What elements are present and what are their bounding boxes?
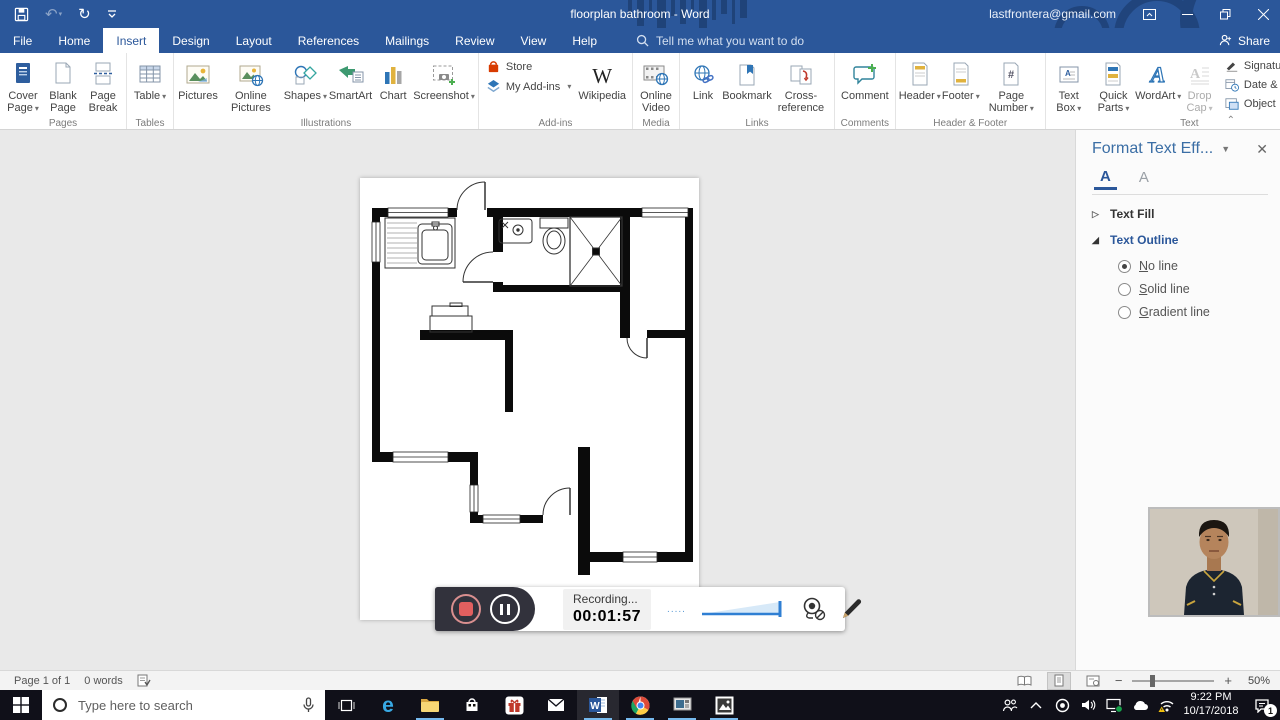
taskbar-file-explorer-button[interactable] xyxy=(409,690,451,720)
word-icon: W xyxy=(589,696,608,714)
webcam-off-icon xyxy=(800,596,827,622)
chart-icon xyxy=(381,57,405,87)
date-time-button[interactable]: Date & Time xyxy=(1225,78,1280,92)
footer-icon xyxy=(950,57,972,87)
close-icon xyxy=(1258,9,1269,20)
system-tray: 9:22 PM 10/17/2018 1 xyxy=(998,690,1280,720)
button-label: Quick Parts▾ xyxy=(1092,90,1135,115)
table-icon xyxy=(137,57,163,87)
button-label: Online Video xyxy=(639,90,673,115)
pause-icon xyxy=(500,604,503,615)
stop-icon xyxy=(459,602,473,616)
date-time-label: Date & Time xyxy=(1244,79,1280,91)
text-box-icon: A xyxy=(1057,57,1081,87)
signature-line-button[interactable]: Signature Line ▾ xyxy=(1225,59,1280,73)
recording-status: Recording... 00:01:57 xyxy=(563,589,651,630)
svg-text:W: W xyxy=(590,701,600,712)
bookmark-button[interactable]: Bookmark xyxy=(723,54,771,116)
zoom-slider-thumb[interactable] xyxy=(1150,675,1155,687)
stop-recording-button[interactable] xyxy=(451,594,481,624)
group-label-links: Links xyxy=(680,118,834,129)
svg-text:A: A xyxy=(1065,69,1071,78)
file-explorer-icon xyxy=(420,697,440,713)
chevron-down-icon: ▾ xyxy=(471,92,475,101)
tab-file[interactable]: File xyxy=(0,28,45,53)
page-indicator[interactable]: Page 1 of 1 xyxy=(14,675,70,687)
comment-button[interactable]: Comment xyxy=(838,54,892,116)
collapsed-triangle-icon: ▷ xyxy=(1092,209,1102,220)
cloud-icon xyxy=(1132,699,1149,711)
redo-button[interactable]: ↻ xyxy=(78,5,91,23)
drag-handle-dots[interactable]: ..... xyxy=(667,604,686,615)
online-video-icon xyxy=(642,57,670,87)
button-label: Footer▾ xyxy=(942,90,980,102)
button-label: Page Break xyxy=(86,90,120,115)
radio-button xyxy=(1118,306,1131,319)
cortana-icon xyxy=(52,697,68,713)
button-label: Cover Page▾ xyxy=(6,90,40,115)
page-break-icon xyxy=(91,57,115,87)
edge-icon: e xyxy=(382,695,394,716)
webcam-person xyxy=(1150,509,1278,615)
task-view-icon xyxy=(338,698,355,713)
text-box-button[interactable]: A Text Box▾ xyxy=(1049,54,1089,116)
smartart-button[interactable]: SmartArt xyxy=(328,54,373,116)
button-label: Bookmark xyxy=(722,90,772,102)
network-button[interactable] xyxy=(1154,690,1178,720)
ribbon-group-illustrations: Pictures Online Pictures Shapes▾ SmartAr… xyxy=(174,53,479,129)
svg-text:#: # xyxy=(1008,69,1014,81)
my-addins-label: My Add-ins xyxy=(506,81,560,93)
windows-taskbar: Type here to search e W xyxy=(0,690,1280,720)
chevron-down-icon: ▾ xyxy=(1030,104,1034,113)
recording-controls xyxy=(435,587,535,631)
chevron-up-icon xyxy=(1030,701,1042,709)
button-label: Table▾ xyxy=(134,90,166,102)
restore-button[interactable] xyxy=(1214,3,1236,25)
ribbon-group-pages: Cover Page▾ Blank Page Page Break Pages xyxy=(0,53,127,129)
recorder-app-icon xyxy=(673,697,692,713)
search-placeholder: Type here to search xyxy=(78,698,292,713)
taskbar-chrome-button[interactable] xyxy=(619,690,661,720)
tab-help[interactable]: Help xyxy=(559,28,610,53)
volume-button[interactable] xyxy=(1076,690,1100,720)
webcam-toggle-button[interactable] xyxy=(800,596,827,622)
pencil-icon xyxy=(839,596,865,622)
cross-reference-button[interactable]: Cross-reference xyxy=(771,54,831,116)
pane-close-icon[interactable]: ✕ xyxy=(1256,141,1268,158)
svg-text:A: A xyxy=(1189,67,1200,82)
pictures-icon xyxy=(185,57,211,87)
radio-label: Gradient line xyxy=(1139,305,1210,319)
group-label-header-footer: Header & Footer xyxy=(896,118,1045,129)
signature-line-label: Signature Line xyxy=(1244,60,1280,72)
radio-button-selected xyxy=(1118,260,1131,273)
button-label: Cross-reference xyxy=(774,90,828,115)
chevron-down-icon: ▾ xyxy=(323,92,327,101)
online-pictures-button[interactable]: Online Pictures xyxy=(219,54,283,116)
radio-no-line[interactable]: No line xyxy=(1118,259,1268,273)
read-mode-button[interactable] xyxy=(1013,672,1037,690)
blank-page-icon xyxy=(51,57,75,87)
group-label-media: Media xyxy=(633,118,679,129)
microphone-icon[interactable] xyxy=(302,697,315,713)
monitor-icon xyxy=(1106,698,1123,713)
object-label: Object xyxy=(1244,98,1276,110)
taskbar-gift-app-button[interactable] xyxy=(493,690,535,720)
tell-me-search[interactable]: Tell me what you want to do xyxy=(626,28,814,53)
header-icon xyxy=(909,57,931,87)
button-label: Shapes▾ xyxy=(284,90,327,102)
mic-level-meter[interactable] xyxy=(700,597,788,622)
group-label-tables: Tables xyxy=(127,118,173,129)
status-bar: Page 1 of 1 0 words − + 50% xyxy=(0,670,1280,690)
radio-button xyxy=(1118,283,1131,296)
web-layout-button[interactable] xyxy=(1081,672,1105,690)
store-label: Store xyxy=(506,61,532,73)
ribbon-display-options-icon xyxy=(1143,9,1156,20)
button-label: Link xyxy=(693,90,713,102)
object-button[interactable]: Object ▾ xyxy=(1225,97,1280,111)
shapes-icon xyxy=(292,57,318,87)
quick-parts-icon xyxy=(1102,57,1124,87)
action-center-button[interactable]: 1 xyxy=(1244,690,1280,720)
ribbon: Cover Page▾ Blank Page Page Break Pages … xyxy=(0,53,1280,130)
text-fill-outline-tab[interactable]: A xyxy=(1094,168,1117,190)
button-label: Pictures xyxy=(178,90,218,102)
page-number-icon: # xyxy=(1000,57,1022,87)
page-number-button[interactable]: # Page Number▾ xyxy=(981,54,1042,116)
draw-pen-button[interactable] xyxy=(839,596,865,622)
chevron-down-icon: ▾ xyxy=(1125,104,1129,113)
quick-access-toolbar: ↶▾ ↻ xyxy=(14,0,117,28)
ribbon-group-media: Online Video Media xyxy=(633,53,680,129)
table-button[interactable]: Table▾ xyxy=(130,54,170,116)
tab-design[interactable]: Design xyxy=(159,28,222,53)
drop-cap-icon: A xyxy=(1188,57,1212,87)
store-app-icon xyxy=(464,697,480,713)
radio-solid-line[interactable]: Solid line xyxy=(1118,282,1268,296)
link-button[interactable]: Link xyxy=(683,54,723,116)
cross-reference-icon xyxy=(788,57,814,87)
restore-icon xyxy=(1220,9,1231,20)
drop-cap-button: A Drop Cap▾ xyxy=(1178,54,1221,116)
link-icon xyxy=(691,57,715,87)
button-label: WordArt▾ xyxy=(1135,90,1181,102)
tab-insert[interactable]: Insert xyxy=(103,28,159,53)
gift-icon xyxy=(505,696,524,715)
taskbar-edge-button[interactable]: e xyxy=(367,690,409,720)
start-button[interactable] xyxy=(0,690,42,720)
titlebar-stripes-decoration xyxy=(628,0,747,28)
taskbar-clock[interactable]: 9:22 PM 10/17/2018 xyxy=(1180,691,1242,719)
chevron-down-icon: ▾ xyxy=(1077,104,1081,113)
wifi-warning-icon xyxy=(1158,698,1175,713)
pane-divider xyxy=(1092,194,1268,195)
screenshot-icon xyxy=(431,57,457,87)
button-label: Drop Cap▾ xyxy=(1181,90,1218,115)
signature-line-icon xyxy=(1225,59,1239,73)
tab-mailings[interactable]: Mailings xyxy=(372,28,442,53)
ribbon-group-header-footer: Header▾ Footer▾ # Page Number▾ Header & … xyxy=(896,53,1046,129)
word-count[interactable]: 0 words xyxy=(84,675,123,687)
section-text-outline[interactable]: ◢ Text Outline xyxy=(1092,233,1268,247)
tab-references[interactable]: References xyxy=(285,28,372,53)
zoom-out-button[interactable]: − xyxy=(1115,674,1123,687)
group-label-text: Text xyxy=(1046,118,1280,129)
taskbar-mail-button[interactable] xyxy=(535,690,577,720)
floorplan-drawing xyxy=(360,178,699,620)
button-label: Page Number▾ xyxy=(984,90,1039,115)
footer-button[interactable]: Footer▾ xyxy=(941,54,981,116)
button-label: Text Box▾ xyxy=(1052,90,1086,115)
comment-icon xyxy=(852,57,878,87)
tab-layout[interactable]: Layout xyxy=(223,28,285,53)
windows-logo-icon xyxy=(13,697,29,713)
word-window: ↶▾ ↻ floorplan bathroom - Word lastfront… xyxy=(0,0,1280,720)
radio-gradient-line[interactable]: Gradient line xyxy=(1118,305,1268,319)
ribbon-group-comments: Comment Comments xyxy=(835,53,896,129)
proofing-status-icon[interactable] xyxy=(137,674,151,687)
collapse-ribbon-button[interactable]: ⌃ xyxy=(1227,115,1235,126)
show-hidden-icons-button[interactable] xyxy=(1024,690,1048,720)
taskbar-photos-button[interactable] xyxy=(703,690,745,720)
print-layout-button[interactable] xyxy=(1047,672,1071,690)
page-break-button[interactable]: Page Break xyxy=(83,54,123,116)
ribbon-tab-row: File Home Insert Design Layout Reference… xyxy=(0,28,1280,53)
section-text-fill[interactable]: ▷ Text Fill xyxy=(1092,207,1268,221)
speaker-icon xyxy=(1081,698,1096,712)
recording-indicator-tray[interactable] xyxy=(1050,690,1074,720)
tab-home[interactable]: Home xyxy=(45,28,103,53)
chevron-down-icon: ▾ xyxy=(1209,104,1213,113)
quick-parts-button[interactable]: Quick Parts▾ xyxy=(1089,54,1138,116)
notification-badge: 1 xyxy=(1264,704,1277,717)
text-effects-tab[interactable]: A xyxy=(1135,169,1153,190)
search-icon xyxy=(636,34,649,47)
text-fill-label: Text Fill xyxy=(1110,207,1154,221)
cover-page-icon xyxy=(11,57,35,87)
people-icon xyxy=(1002,698,1018,713)
radio-label: No line xyxy=(1139,259,1178,273)
undo-button[interactable]: ↶▾ xyxy=(45,5,62,23)
group-label-pages: Pages xyxy=(0,118,126,129)
customize-qat-button[interactable] xyxy=(107,8,117,20)
button-label: Comment xyxy=(841,90,889,102)
screenshot-button[interactable]: Screenshot▾ xyxy=(413,54,475,116)
document-page[interactable] xyxy=(360,178,699,620)
minimize-icon xyxy=(1182,9,1193,20)
ribbon-display-options-button[interactable] xyxy=(1138,3,1160,25)
button-label: Online Pictures xyxy=(222,90,280,115)
close-button[interactable] xyxy=(1252,3,1274,25)
button-label: Wikipedia xyxy=(578,90,626,102)
blank-page-button[interactable]: Blank Page xyxy=(43,54,83,116)
record-dot-icon xyxy=(1055,698,1070,713)
pause-recording-button[interactable] xyxy=(490,594,520,624)
ribbon-group-links: Link Bookmark Cross-reference Links xyxy=(680,53,835,129)
online-video-button[interactable]: Online Video xyxy=(636,54,676,116)
people-button[interactable] xyxy=(998,690,1022,720)
tell-me-label: Tell me what you want to do xyxy=(656,34,804,48)
taskbar-word-button[interactable]: W xyxy=(577,690,619,720)
svg-text:A: A xyxy=(1149,62,1166,87)
webcam-preview[interactable] xyxy=(1148,507,1280,617)
button-label: Header▾ xyxy=(899,90,941,102)
chevron-down-icon: ▾ xyxy=(567,82,571,91)
wikipedia-icon: W xyxy=(592,66,612,87)
store-icon xyxy=(486,59,501,74)
zoom-in-button[interactable]: + xyxy=(1224,674,1232,687)
ribbon-group-addins: Store My Add-ins ▾ W Wikipedia Add-ins xyxy=(479,53,633,129)
chevron-down-icon: ▾ xyxy=(976,92,980,101)
wordart-button[interactable]: A WordArt▾ xyxy=(1138,54,1178,116)
ribbon-group-text: A Text Box▾ Quick Parts▾ A WordArt▾ A Dr… xyxy=(1046,53,1280,129)
taskbar-recorder-app-button[interactable] xyxy=(661,690,703,720)
account-email[interactable]: lastfrontera@gmail.com xyxy=(989,7,1116,21)
share-label: Share xyxy=(1238,34,1270,48)
button-label: Blank Page xyxy=(46,90,80,115)
chevron-down-icon: ▾ xyxy=(35,104,39,113)
pause-icon xyxy=(507,604,510,615)
smartart-icon xyxy=(337,57,365,87)
task-view-button[interactable] xyxy=(325,690,367,720)
pane-dropdown-icon[interactable]: ▼ xyxy=(1221,144,1230,154)
share-button[interactable]: Share xyxy=(1219,28,1270,53)
pictures-button[interactable]: Pictures xyxy=(177,54,219,116)
store-button[interactable]: Store xyxy=(486,59,571,74)
clock-time: 9:22 PM xyxy=(1180,691,1242,705)
save-button[interactable] xyxy=(14,7,29,22)
zoom-percentage[interactable]: 50% xyxy=(1242,675,1270,687)
customize-qat-icon xyxy=(107,8,117,20)
mail-icon xyxy=(547,698,565,712)
wordart-icon: A xyxy=(1145,57,1171,87)
button-label: Screenshot▾ xyxy=(413,90,475,102)
button-label: SmartArt xyxy=(329,90,372,102)
online-pictures-icon xyxy=(238,57,264,87)
recording-timer: 00:01:57 xyxy=(573,607,641,627)
date-time-icon xyxy=(1225,78,1239,92)
minimize-button[interactable] xyxy=(1176,3,1198,25)
title-bar: ↶▾ ↻ floorplan bathroom - Word lastfront… xyxy=(0,0,1280,28)
display-cast-button[interactable] xyxy=(1102,690,1126,720)
recording-toolbar: Recording... 00:01:57 ..... xyxy=(435,587,845,631)
bookmark-icon xyxy=(735,57,759,87)
tab-view[interactable]: View xyxy=(508,28,560,53)
taskbar-store-button[interactable] xyxy=(451,690,493,720)
my-addins-icon xyxy=(486,79,501,94)
recording-status-text: Recording... xyxy=(573,592,641,607)
group-label-illustrations: Illustrations xyxy=(174,118,478,129)
button-label: Chart xyxy=(380,90,407,102)
chevron-down-icon: ▾ xyxy=(162,92,166,101)
tab-review[interactable]: Review xyxy=(442,28,507,53)
ribbon-group-tables: Table▾ Tables xyxy=(127,53,174,129)
photos-icon xyxy=(715,696,734,715)
zoom-slider[interactable] xyxy=(1132,680,1214,682)
shapes-button[interactable]: Shapes▾ xyxy=(283,54,328,116)
text-outline-label: Text Outline xyxy=(1110,233,1178,247)
pane-title: Format Text Eff... xyxy=(1092,140,1213,158)
onedrive-button[interactable] xyxy=(1128,690,1152,720)
radio-label: Solid line xyxy=(1139,282,1190,296)
save-icon xyxy=(14,7,29,22)
clock-date: 10/17/2018 xyxy=(1180,705,1242,719)
group-label-addins: Add-ins xyxy=(479,118,632,129)
header-button[interactable]: Header▾ xyxy=(899,54,941,116)
expanded-triangle-icon: ◢ xyxy=(1092,235,1102,246)
wikipedia-button[interactable]: W Wikipedia xyxy=(575,54,629,116)
my-addins-button[interactable]: My Add-ins ▾ xyxy=(486,79,571,94)
share-person-icon xyxy=(1219,34,1232,47)
cover-page-button[interactable]: Cover Page▾ xyxy=(3,54,43,116)
object-icon xyxy=(1225,97,1239,111)
group-label-comments: Comments xyxy=(835,118,895,129)
chrome-icon xyxy=(631,696,650,715)
taskbar-search-input[interactable]: Type here to search xyxy=(42,690,325,720)
chart-button[interactable]: Chart xyxy=(373,54,413,116)
